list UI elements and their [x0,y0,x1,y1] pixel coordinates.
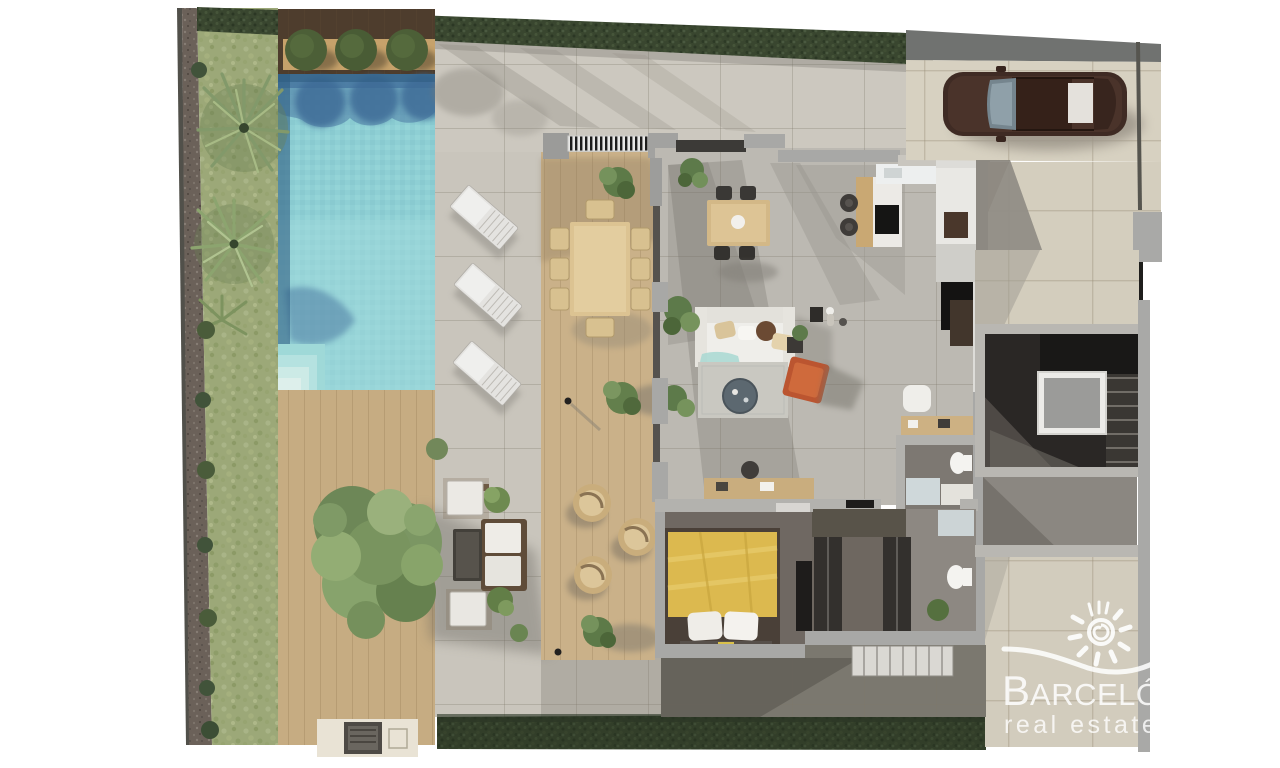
svg-text:real estate: real estate [1004,711,1159,739]
